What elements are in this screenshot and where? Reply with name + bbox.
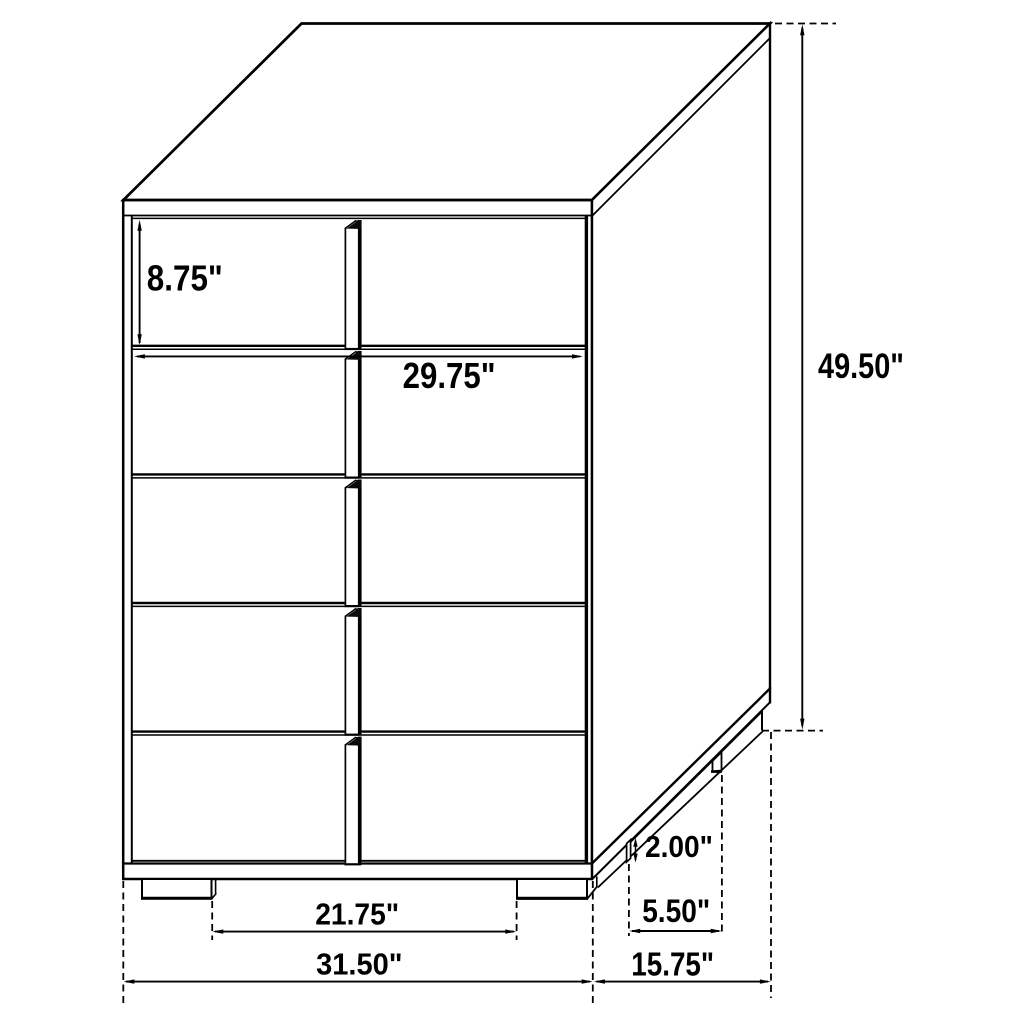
svg-text:31.50": 31.50" [316, 948, 402, 982]
svg-text:49.50": 49.50" [818, 347, 904, 386]
svg-text:29.75": 29.75" [403, 355, 496, 396]
svg-text:5.50": 5.50" [642, 893, 710, 929]
svg-text:2.00": 2.00" [645, 829, 713, 864]
svg-text:15.75": 15.75" [631, 946, 714, 983]
svg-text:21.75": 21.75" [315, 896, 399, 931]
svg-text:8.75": 8.75" [147, 257, 223, 298]
